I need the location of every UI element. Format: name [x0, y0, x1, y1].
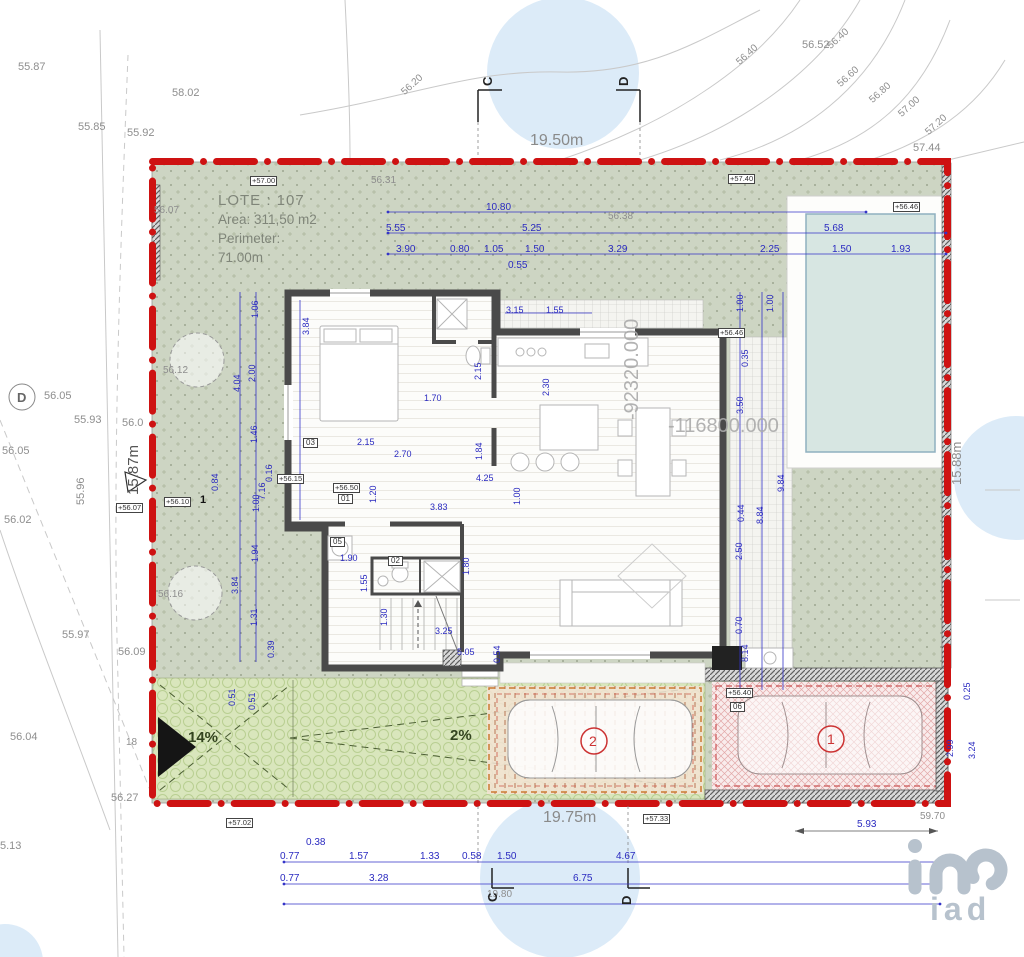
elevation-label: 56.07	[154, 206, 179, 216]
dim-label: 1.70	[424, 394, 442, 403]
elevation-label: 56.05	[2, 446, 30, 457]
room-03: 03	[303, 438, 318, 448]
dim-label: 1.30	[380, 608, 389, 626]
dim-label: 1.50	[525, 245, 544, 255]
dim-label: 1.00	[513, 487, 522, 505]
dim-label: 1.00	[766, 294, 775, 312]
dim-label: 0.39	[267, 640, 276, 658]
dim-label: 2.00	[248, 364, 257, 382]
dim-label: 1.06	[251, 300, 260, 318]
dim-label: 1.93	[891, 245, 910, 255]
dim-left-15-87: 15.87m	[126, 445, 141, 495]
elevation-label: 57.44	[913, 143, 941, 154]
dim-label: 4.67	[616, 852, 635, 862]
level-marker: +56.46	[893, 202, 920, 212]
dim-label: 10.80	[486, 203, 511, 213]
room-02: 02	[388, 556, 403, 566]
dim-label: 1.33	[420, 852, 439, 862]
dim-label: 0.58	[462, 852, 481, 862]
dim-label: 2.15	[474, 362, 483, 380]
pool	[787, 196, 950, 468]
parking-2-number: 2	[589, 734, 597, 748]
dim-label: 1.05	[484, 245, 503, 255]
dim-label: 6.75	[573, 874, 592, 884]
elevation-label: 5.13	[0, 841, 21, 852]
dim-label: 3.84	[231, 576, 240, 594]
dim-label: 1.20	[369, 485, 378, 503]
dim-label: 3.28	[369, 874, 388, 884]
dim-label: 0.77	[280, 852, 299, 862]
dim-bottom-19-75: 19.75m	[543, 810, 596, 826]
detail-d-letter: D	[17, 391, 26, 404]
dim-label: 2.25	[760, 245, 779, 255]
level-marker: +57.02	[226, 818, 253, 828]
dim-label: 5.05	[457, 648, 475, 657]
dim-label: 3.29	[608, 245, 627, 255]
elevation-label: 55.85	[78, 122, 106, 133]
dim-label: 0.25	[963, 682, 972, 700]
level-marker: +56.10	[164, 497, 191, 507]
label-18: 18	[126, 738, 137, 748]
elevation-label: 56.12	[163, 366, 188, 376]
elevation-label: 56.02	[4, 515, 32, 526]
dim-label: 2.15	[357, 438, 375, 447]
dim-label: 1.80	[462, 557, 471, 575]
lot-perimeter-label: Perimeter:	[218, 230, 317, 249]
dim-label: 4.25	[476, 474, 494, 483]
elevation-label: 56.16	[158, 590, 183, 600]
dim-label: 1.50	[497, 852, 516, 862]
dim-label: 4.04	[233, 374, 242, 392]
elevation-label: 56.27	[111, 793, 139, 804]
dim-label: 1.55	[360, 574, 369, 592]
site-plan-drawing	[0, 0, 1024, 957]
dim-label: 2.50	[735, 542, 744, 560]
dim-label: 0.35	[741, 349, 750, 367]
level-marker: +57.00	[250, 176, 277, 186]
dim-right-15-88: 15.88m	[950, 442, 963, 485]
dim-label: 0.16	[265, 464, 274, 482]
dim-label: 0.55	[508, 261, 527, 271]
dim-label: 9.84	[777, 474, 786, 492]
house-floorplan	[284, 289, 793, 670]
dim-label: 1.90	[340, 554, 358, 563]
coordinate-y: -116800.000	[668, 416, 779, 436]
section-d-bottom: D	[620, 896, 633, 905]
dim-label: 2.30	[542, 378, 551, 396]
slope-2: 2%	[450, 728, 472, 743]
dim-label: 0.51	[228, 688, 237, 706]
dim-label: 3.15	[506, 306, 524, 315]
dim-label: 0.38	[306, 838, 325, 848]
dim-5-93: 5.93	[857, 820, 876, 830]
iad-logo-icon	[908, 839, 1006, 890]
room-06: 06	[730, 702, 745, 712]
dim-label: 1.00	[252, 494, 261, 512]
lot-perimeter-value: 71.00m	[218, 249, 317, 268]
fireplace-block	[712, 646, 742, 670]
level-marker: +57.40	[728, 174, 755, 184]
dim-label: 0.80	[450, 245, 469, 255]
elevation-label: 55.97	[62, 630, 90, 641]
dim-label: 3.25	[435, 627, 453, 636]
dim-label: 3.24	[968, 741, 977, 759]
lot-number: LOTE : 107	[218, 190, 317, 211]
dim-label: 1.57	[349, 852, 368, 862]
dim-label: 0.54	[493, 645, 502, 663]
dim-label: 5.25	[522, 224, 541, 234]
dim-label: 3.84	[302, 317, 311, 335]
level-marker: +56.50	[333, 483, 360, 493]
dim-label: 1.55	[546, 306, 564, 315]
dim-top-19-50: 19.50m	[530, 133, 583, 149]
room-01: 01	[338, 494, 353, 504]
dim-label: 1.84	[475, 442, 484, 460]
lot-area: Area: 311,50 m2	[218, 211, 317, 230]
elevation-label: 56.0	[122, 418, 143, 429]
elevation-label: 56.09	[118, 647, 146, 658]
dim-label: 1.00	[736, 294, 745, 312]
dim-label: 0.70	[735, 616, 744, 634]
dim-label: 5.68	[824, 224, 843, 234]
elevation-label: 55.87	[18, 62, 46, 73]
marker-1: 1	[200, 495, 206, 506]
parking-1-number: 1	[827, 732, 835, 746]
dim-label: 5.55	[386, 224, 405, 234]
elevation-label: 58.02	[172, 88, 200, 99]
level-marker: +57.33	[643, 814, 670, 824]
dim-label: 1.94	[251, 544, 260, 562]
coordinate-x: -92320.000	[622, 319, 642, 420]
elevation-label: 56.38	[608, 212, 633, 222]
dim-label: 1.46	[250, 425, 259, 443]
elevation-label: 56.05	[44, 391, 72, 402]
slope-14: 14%	[188, 730, 218, 745]
elevation-label: 56.04	[10, 732, 38, 743]
dim-label: 0.84	[211, 473, 220, 491]
iad-logo-text: iad	[930, 893, 991, 925]
dim-label: 3.83	[430, 503, 448, 512]
elevation-label: 55.96	[76, 477, 87, 505]
dim-label: 3.90	[396, 245, 415, 255]
elevation-label: 55.93	[74, 415, 102, 426]
dim-label: 1.50	[832, 245, 851, 255]
dim-label: 3.50	[736, 396, 745, 414]
elevation-label: 55.92	[127, 128, 155, 139]
level-marker: +56.46	[718, 328, 745, 338]
dim-59-70: 59.70	[920, 812, 945, 822]
lot-title-block: LOTE : 107 Area: 311,50 m2 Perimeter: 71…	[218, 190, 317, 268]
room-05: 05	[330, 537, 345, 547]
section-c-bottom: C	[486, 893, 499, 902]
dim-label: 0.51	[248, 692, 257, 710]
elevation-label: 56.31	[371, 176, 396, 186]
dim-label: 0.44	[737, 504, 746, 522]
dim-label: 2.99	[946, 739, 955, 757]
section-c-top: C	[481, 77, 494, 86]
section-d-top: D	[617, 77, 630, 86]
site-plan-page: LOTE : 107 Area: 311,50 m2 Perimeter: 71…	[0, 0, 1024, 957]
dim-label: 2.70	[394, 450, 412, 459]
dim-label: 0.77	[280, 874, 299, 884]
level-marker: +56.40	[726, 688, 753, 698]
level-marker: +56.15	[277, 474, 304, 484]
level-marker: +56.07	[116, 503, 143, 513]
dim-label: 8.84	[756, 506, 765, 524]
dim-label: 1.31	[250, 608, 259, 626]
dim-label: 8.14	[741, 644, 750, 662]
